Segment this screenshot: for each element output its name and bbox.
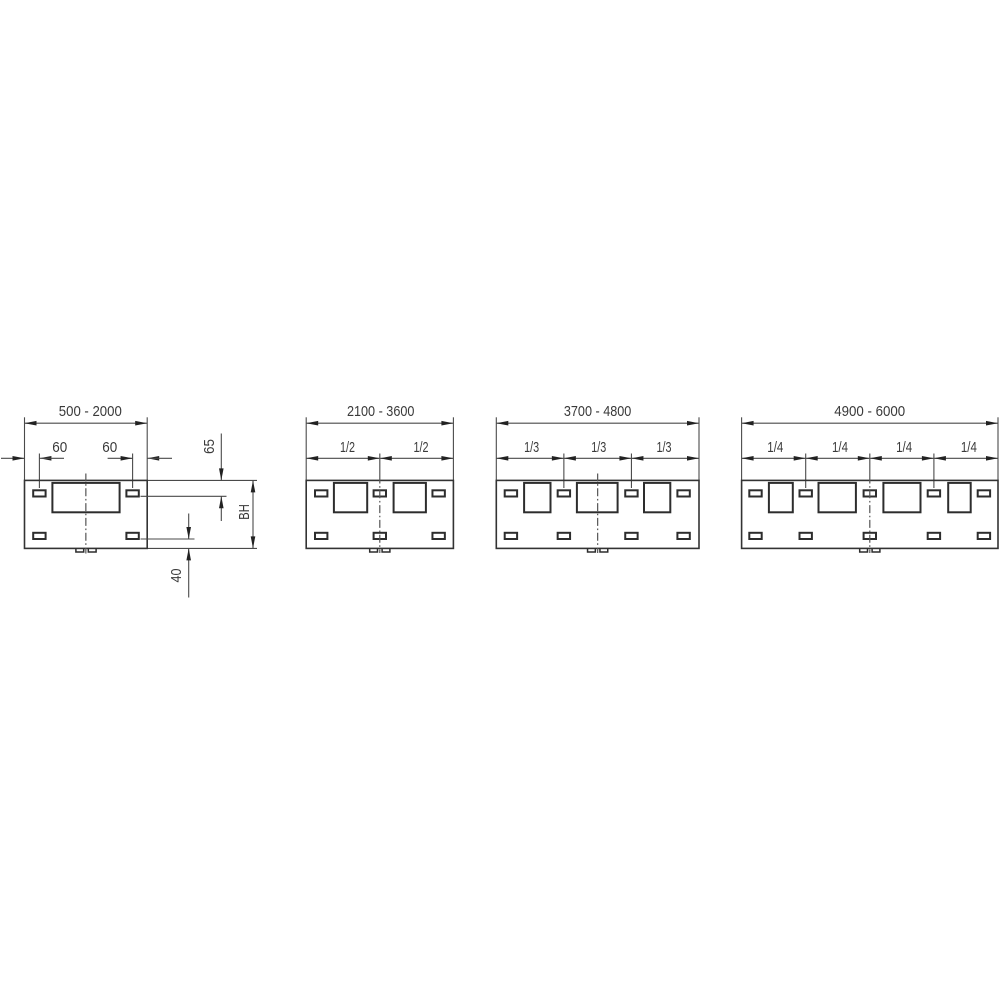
svg-text:1/4: 1/4: [832, 439, 848, 456]
svg-text:4900 - 6000: 4900 - 6000: [834, 403, 905, 420]
svg-text:40: 40: [168, 569, 185, 583]
svg-text:3700 - 4800: 3700 - 4800: [564, 403, 632, 420]
svg-text:1/3: 1/3: [657, 439, 672, 456]
svg-text:2100 - 3600: 2100 - 3600: [347, 403, 415, 420]
svg-text:60: 60: [102, 439, 117, 456]
svg-text:1/4: 1/4: [961, 439, 977, 456]
svg-text:1/2: 1/2: [414, 439, 429, 456]
svg-text:1/3: 1/3: [524, 439, 539, 456]
svg-text:1/3: 1/3: [591, 439, 606, 456]
svg-text:1/4: 1/4: [896, 439, 912, 456]
svg-text:60: 60: [52, 439, 67, 456]
svg-text:1/2: 1/2: [340, 439, 355, 456]
svg-text:BH: BH: [236, 504, 253, 520]
svg-text:65: 65: [201, 439, 218, 454]
svg-text:1/4: 1/4: [767, 439, 783, 456]
svg-text:500 - 2000: 500 - 2000: [59, 403, 122, 420]
